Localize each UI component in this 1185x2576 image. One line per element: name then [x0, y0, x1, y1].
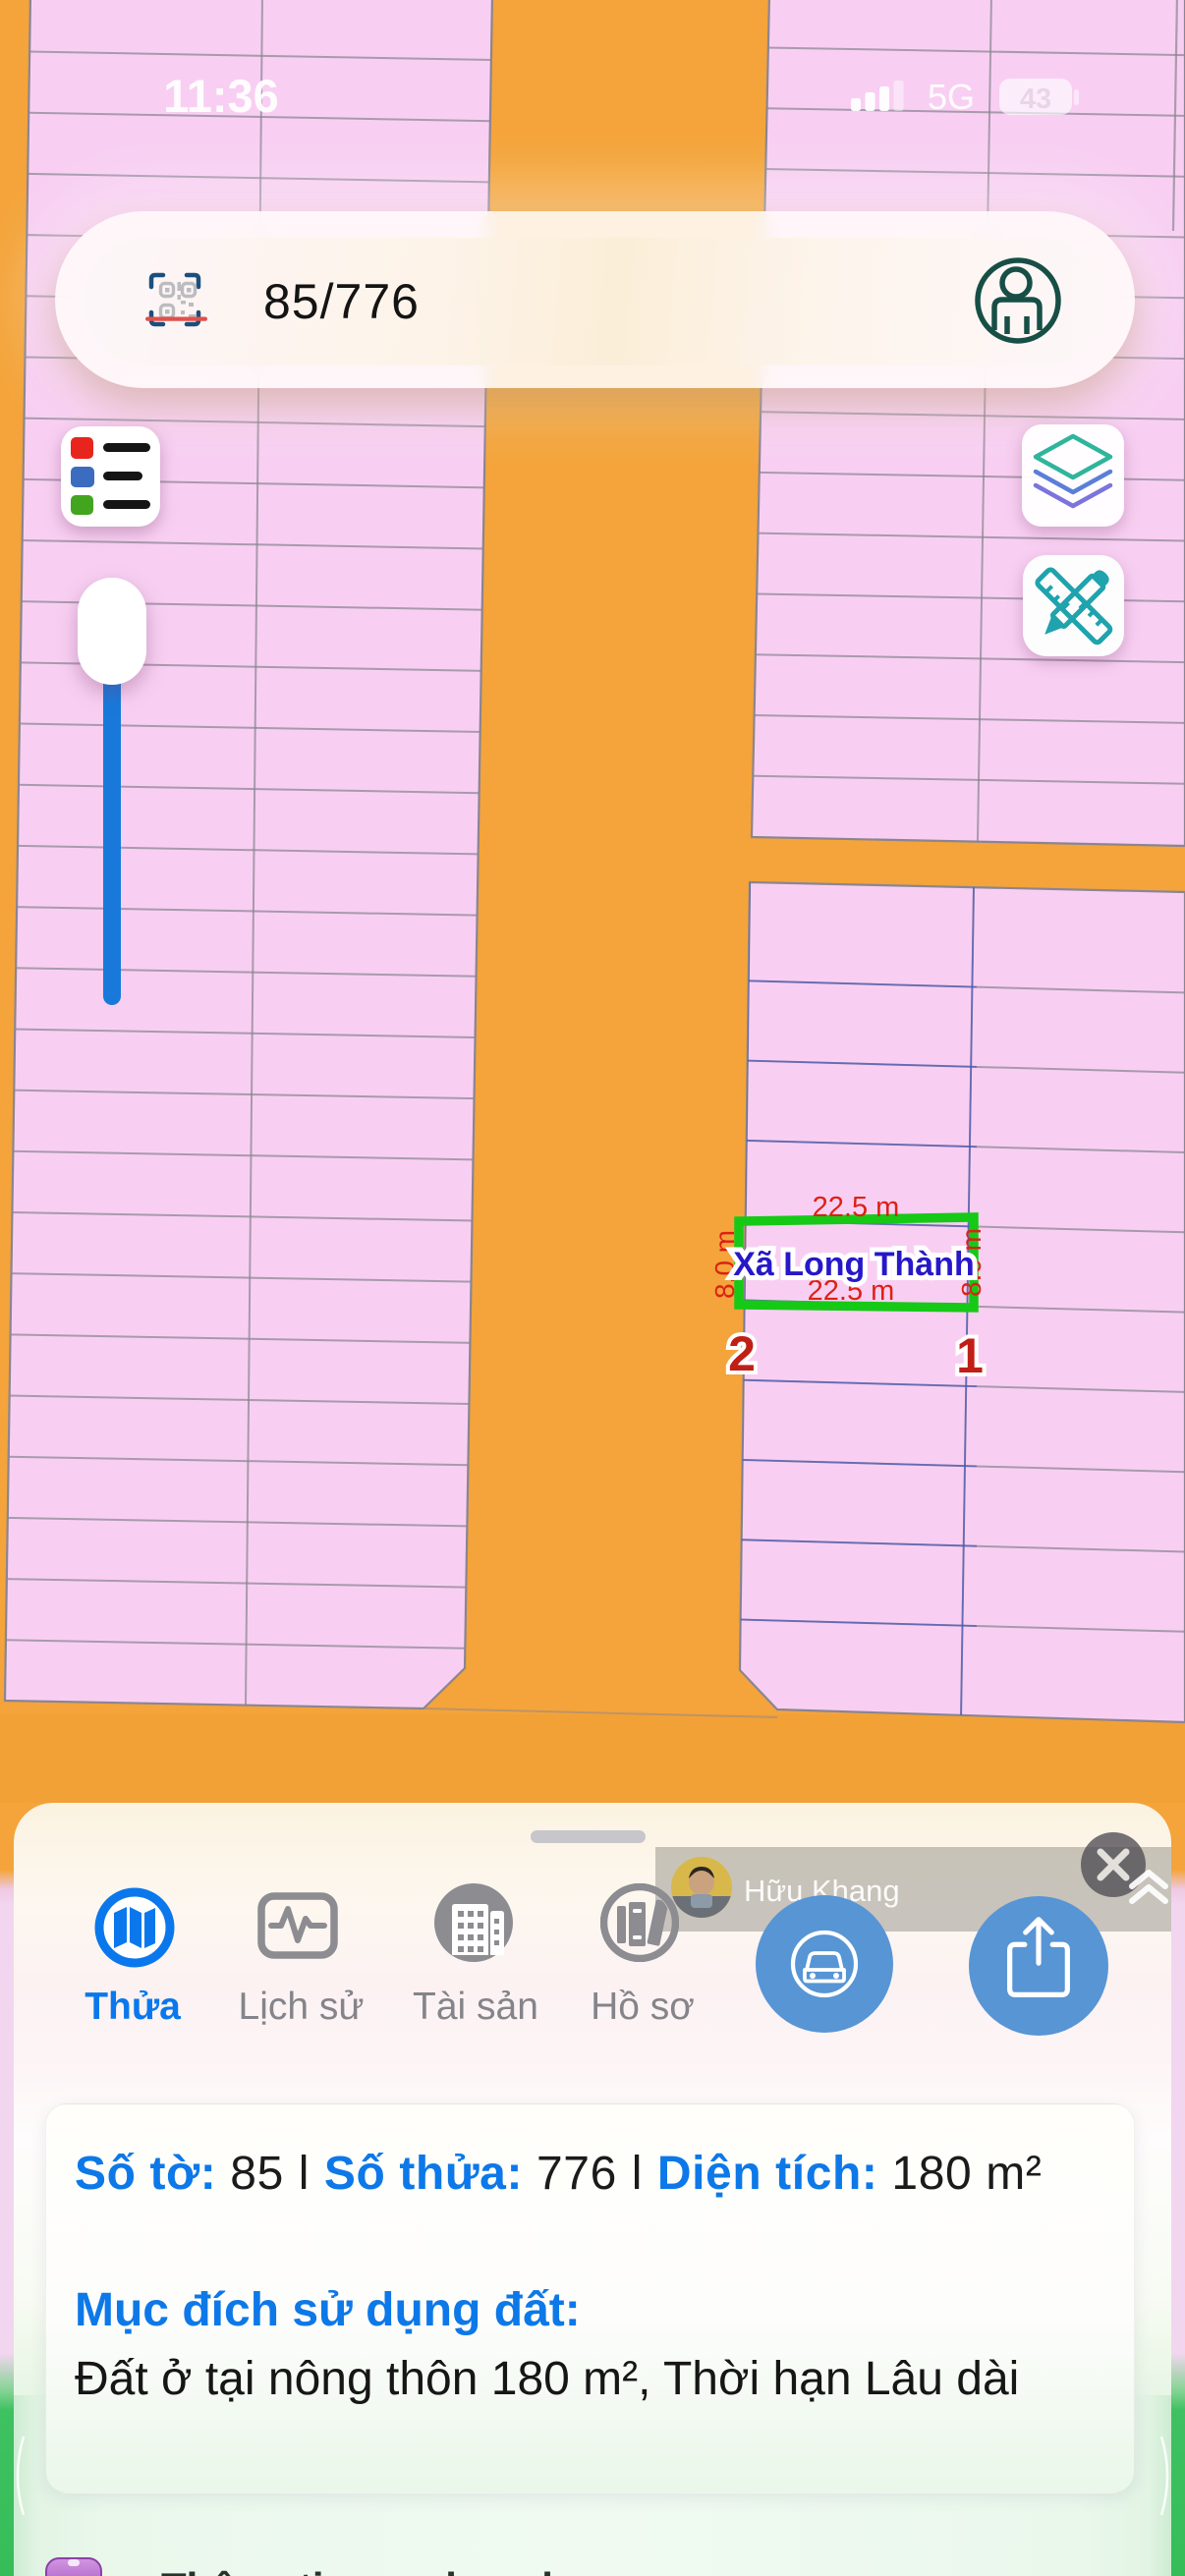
svg-text:1: 1: [956, 1328, 984, 1383]
svg-text:22.5 m: 22.5 m: [813, 1192, 900, 1223]
svg-text:2: 2: [728, 1326, 756, 1381]
svg-text:5G: 5G: [928, 77, 975, 117]
svg-text:Xã Long Thành: Xã Long Thành: [733, 1246, 975, 1283]
svg-text:43: 43: [1020, 84, 1051, 115]
